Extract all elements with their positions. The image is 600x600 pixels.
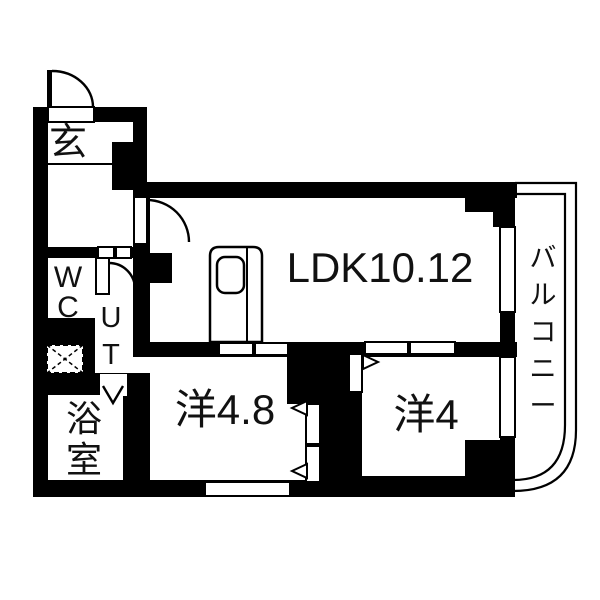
- wc-door-opening: [96, 258, 109, 294]
- bathroom-door-opening: [100, 374, 127, 396]
- wall-bottomright-column: [465, 440, 514, 497]
- ldk-room4-panel-b: [410, 342, 455, 354]
- room48-sliding-door-b: [306, 446, 320, 482]
- wall-bathroom-right: [123, 373, 150, 497]
- wall-right-of-shaft: [83, 345, 95, 373]
- label-bathroom: 浴室: [66, 398, 102, 480]
- hall-panel-left: [98, 247, 114, 258]
- label-western-room-large: 洋4.8: [175, 386, 275, 433]
- entrance-door-leaf: [47, 70, 52, 107]
- label-ldk: LDK10.12: [287, 244, 474, 291]
- label-entrance: 玄: [49, 122, 87, 164]
- pipe-shaft: [47, 345, 83, 373]
- hall-panel-right: [116, 247, 131, 258]
- wall-topright-jog-b: [493, 195, 514, 227]
- window-room48: [205, 482, 290, 496]
- ldk-door-opening: [134, 197, 147, 244]
- window-ldk: [500, 227, 515, 312]
- label-balcony: バルコニー: [530, 243, 557, 421]
- kitchen-sink: [217, 257, 244, 293]
- wall-ldk-top: [133, 182, 517, 198]
- ldk-room48-panel-b: [255, 343, 288, 355]
- room4-sliding-door: [349, 354, 362, 392]
- ldk-room4-panel-a: [365, 342, 408, 354]
- entrance-door-opening: [48, 107, 94, 122]
- label-wc: WC: [54, 261, 83, 324]
- wall-left-outer: [33, 107, 48, 497]
- wall-ldk-left-chunk: [150, 253, 172, 283]
- window-room4: [500, 357, 515, 437]
- room48-sliding-door-a: [306, 404, 320, 444]
- floorplan-canvas: 玄 WC UT 浴室 LDK10.12 洋4.8 洋4 バルコニー: [0, 0, 600, 600]
- label-western-room-small: 洋4: [393, 391, 458, 438]
- wall-pocket-block: [287, 342, 322, 404]
- ldk-room48-panel-a: [219, 343, 253, 355]
